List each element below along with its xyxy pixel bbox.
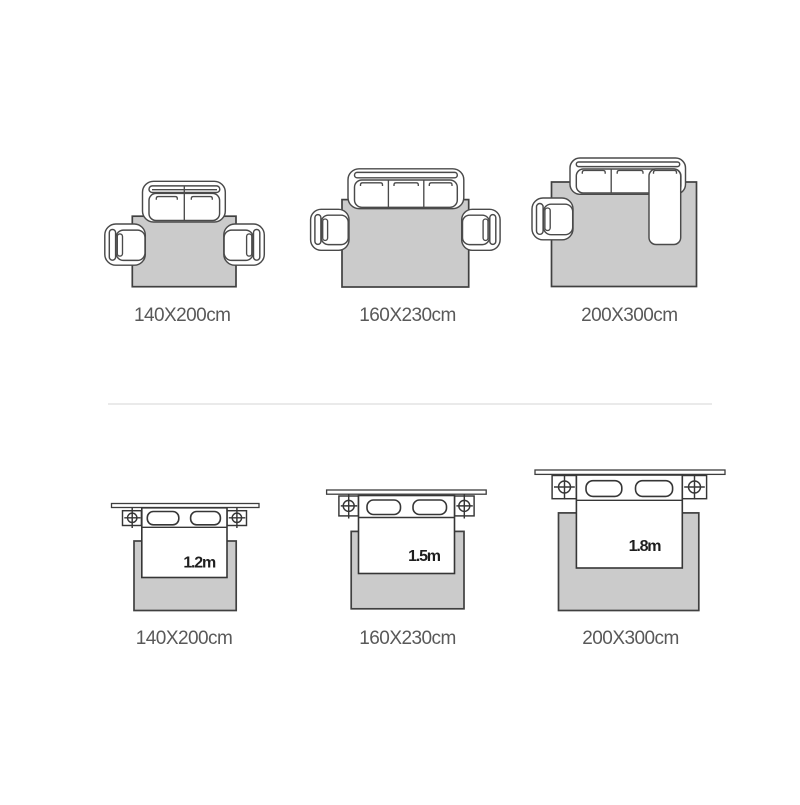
svg-text:200X300cm: 200X300cm xyxy=(582,628,678,649)
svg-text:200X300cm: 200X300cm xyxy=(581,305,677,326)
svg-text:140X200cm: 140X200cm xyxy=(134,305,230,326)
svg-text:1.8m: 1.8m xyxy=(629,538,662,555)
svg-text:1.2m: 1.2m xyxy=(183,555,216,572)
svg-text:1.5m: 1.5m xyxy=(408,548,441,565)
svg-text:160X230cm: 160X230cm xyxy=(359,305,455,326)
svg-text:140X200cm: 140X200cm xyxy=(136,628,232,649)
svg-text:160X230cm: 160X230cm xyxy=(359,628,455,649)
